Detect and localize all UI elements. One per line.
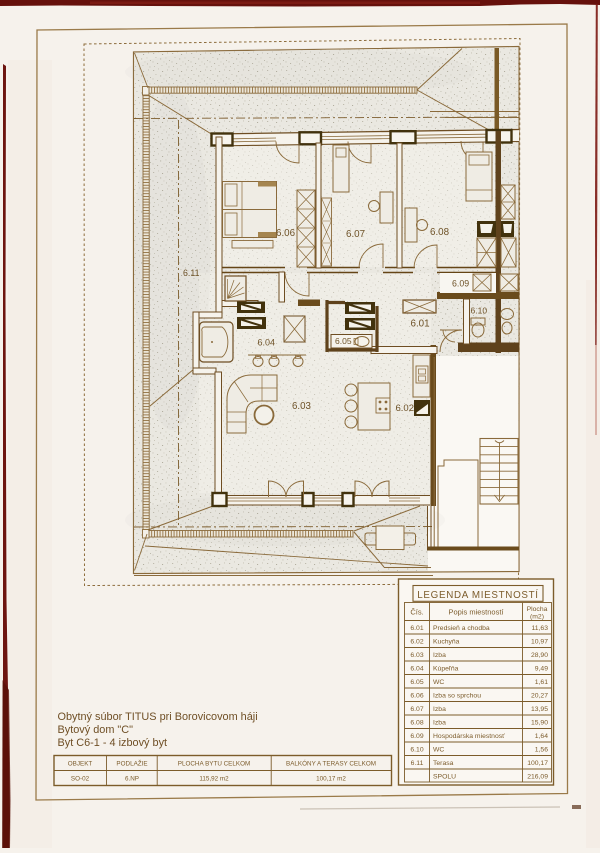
- svg-text:6.09: 6.09: [452, 279, 469, 289]
- svg-text:11,63: 11,63: [531, 625, 548, 632]
- svg-text:1,61: 1,61: [535, 679, 548, 686]
- svg-text:6.08: 6.08: [410, 720, 423, 727]
- svg-text:1,64: 1,64: [535, 733, 548, 740]
- svg-text:Bytový dom "C": Bytový dom "C": [58, 724, 134, 736]
- svg-text:Byt C6-1 - 4 izbový byt: Byt C6-1 - 4 izbový byt: [58, 737, 168, 749]
- svg-text:6.06: 6.06: [276, 228, 296, 239]
- svg-text:6.03: 6.03: [292, 401, 311, 412]
- svg-text:6.02: 6.02: [396, 403, 415, 414]
- svg-text:6.05: 6.05: [410, 679, 423, 686]
- svg-text:Izba: Izba: [433, 706, 446, 713]
- svg-text:6.06: 6.06: [410, 693, 423, 700]
- svg-text:6.10: 6.10: [410, 747, 423, 754]
- svg-text:15,90: 15,90: [531, 720, 548, 727]
- svg-text:Predsieň a chodba: Predsieň a chodba: [433, 625, 490, 632]
- svg-text:20,27: 20,27: [531, 693, 548, 700]
- svg-text:OBJEKT: OBJEKT: [68, 761, 93, 768]
- svg-text:28,90: 28,90: [531, 652, 548, 659]
- svg-text:SPOLU: SPOLU: [433, 774, 456, 781]
- svg-text:Izba: Izba: [433, 720, 446, 727]
- svg-text:6.10: 6.10: [471, 306, 488, 316]
- svg-text:Plocha: Plocha: [527, 606, 548, 613]
- svg-text:6.07: 6.07: [346, 229, 365, 240]
- svg-text:Izba so sprchou: Izba so sprchou: [433, 693, 481, 700]
- svg-text:6.09: 6.09: [410, 733, 423, 740]
- svg-text:6.03: 6.03: [410, 652, 423, 659]
- svg-text:6.05: 6.05: [335, 336, 352, 346]
- svg-text:WC: WC: [433, 747, 444, 754]
- svg-text:6.01: 6.01: [410, 625, 423, 632]
- svg-text:6.11: 6.11: [411, 760, 424, 767]
- svg-text:Terasa: Terasa: [433, 760, 454, 767]
- svg-text:115,92 m2: 115,92 m2: [199, 776, 229, 783]
- svg-text:216,09: 216,09: [527, 774, 548, 781]
- svg-text:Kúpeľňa: Kúpeľňa: [433, 666, 459, 673]
- svg-text:WC: WC: [433, 679, 444, 686]
- svg-text:PLOCHA BYTU CELKOM: PLOCHA BYTU CELKOM: [178, 761, 250, 768]
- svg-text:10,97: 10,97: [531, 639, 548, 646]
- svg-text:Obytný súbor TITUS pri Borovic: Obytný súbor TITUS pri Borovicovom háji: [58, 711, 258, 723]
- svg-text:6.08: 6.08: [430, 227, 450, 238]
- svg-text:6.07: 6.07: [410, 706, 423, 713]
- svg-text:1,56: 1,56: [535, 747, 548, 754]
- svg-text:6.01: 6.01: [411, 319, 430, 330]
- svg-text:6.04: 6.04: [410, 666, 423, 673]
- svg-text:6.NP: 6.NP: [125, 776, 139, 783]
- svg-text:100,17: 100,17: [527, 760, 548, 767]
- svg-text:Kuchyňa: Kuchyňa: [433, 639, 460, 646]
- svg-text:Izba: Izba: [433, 652, 446, 659]
- svg-text:Čís.: Čís.: [410, 608, 423, 617]
- svg-text:Hospodárska miestnosť: Hospodárska miestnosť: [433, 733, 505, 740]
- svg-text:Popis miestností: Popis miestností: [448, 608, 504, 617]
- svg-text:PODLAŽIE: PODLAŽIE: [116, 759, 147, 768]
- svg-text:SO-02: SO-02: [71, 776, 90, 783]
- svg-text:6.11: 6.11: [183, 268, 200, 278]
- svg-text:9,49: 9,49: [535, 666, 548, 673]
- svg-text:6.04: 6.04: [258, 338, 276, 348]
- svg-text:(m2): (m2): [530, 614, 544, 621]
- svg-text:LEGENDA MIESTNOSTÍ: LEGENDA MIESTNOSTÍ: [417, 590, 538, 601]
- svg-text:13,95: 13,95: [531, 706, 548, 713]
- svg-text:100,17 m2: 100,17 m2: [316, 776, 346, 783]
- svg-text:BALKÓNY A TERASY CELKOM: BALKÓNY A TERASY CELKOM: [286, 759, 376, 768]
- svg-text:6.02: 6.02: [410, 639, 423, 646]
